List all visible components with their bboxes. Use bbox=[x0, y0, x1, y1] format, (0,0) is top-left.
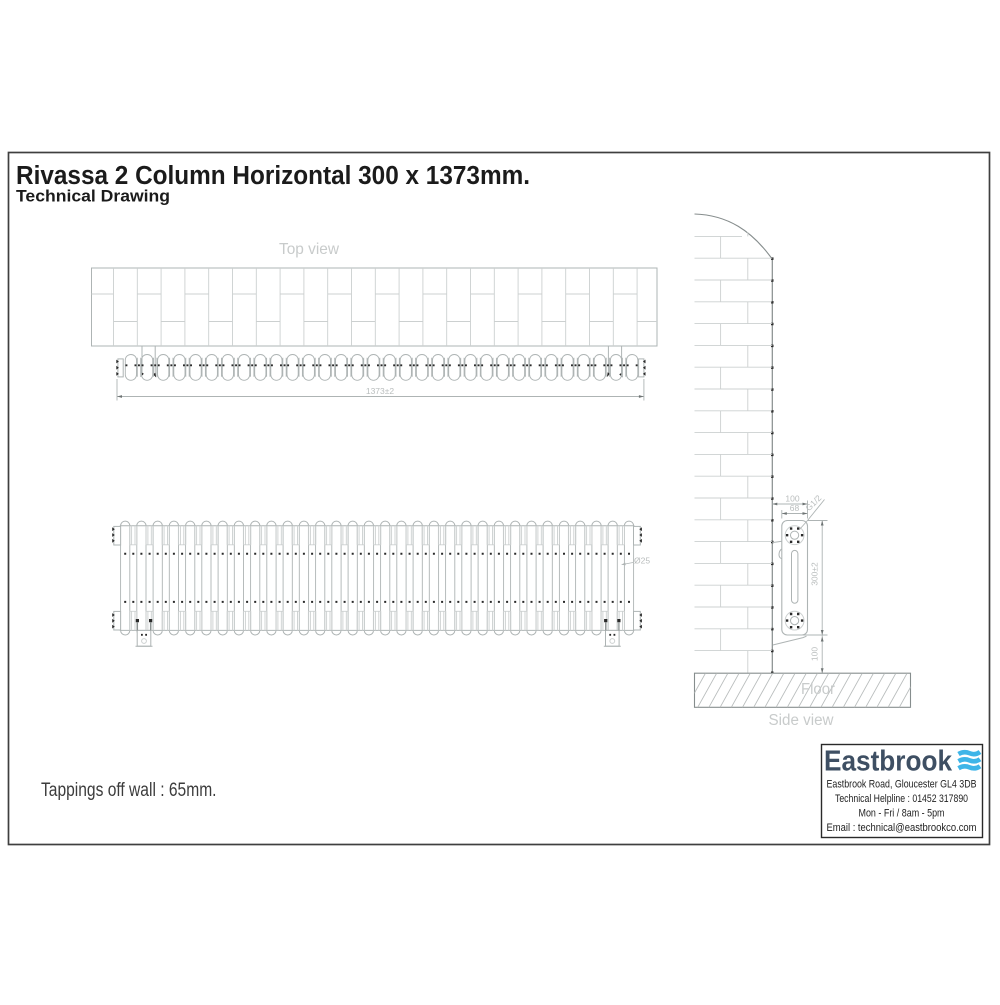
svg-text:100: 100 bbox=[810, 647, 820, 661]
svg-text:1373±2: 1373±2 bbox=[366, 386, 395, 396]
svg-text:Ø25: Ø25 bbox=[634, 556, 650, 566]
svg-text:68: 68 bbox=[790, 503, 800, 513]
svg-text:Eastbrook: Eastbrook bbox=[824, 746, 952, 778]
svg-text:Side view: Side view bbox=[769, 712, 835, 729]
svg-text:Technical Drawing: Technical Drawing bbox=[16, 188, 170, 206]
svg-text:300±2: 300±2 bbox=[810, 562, 820, 586]
svg-text:Eastbrook Road, Gloucester GL4: Eastbrook Road, Gloucester GL4 3DB bbox=[827, 779, 977, 791]
svg-text:Technical Helpline : 01452 317: Technical Helpline : 01452 317890 bbox=[835, 793, 968, 805]
svg-text:Mon - Fri / 8am - 5pm: Mon - Fri / 8am - 5pm bbox=[859, 808, 945, 820]
svg-text:Tappings off wall : 65mm.: Tappings off wall : 65mm. bbox=[41, 780, 217, 801]
svg-text:Rivassa 2 Column Horizontal 30: Rivassa 2 Column Horizontal 300 x 1373mm… bbox=[16, 162, 530, 190]
svg-text:Top view: Top view bbox=[279, 241, 339, 258]
svg-text:Email : technical@eastbrookco.: Email : technical@eastbrookco.com bbox=[827, 822, 977, 834]
svg-text:Floor: Floor bbox=[801, 681, 835, 698]
svg-text:100: 100 bbox=[785, 494, 799, 504]
